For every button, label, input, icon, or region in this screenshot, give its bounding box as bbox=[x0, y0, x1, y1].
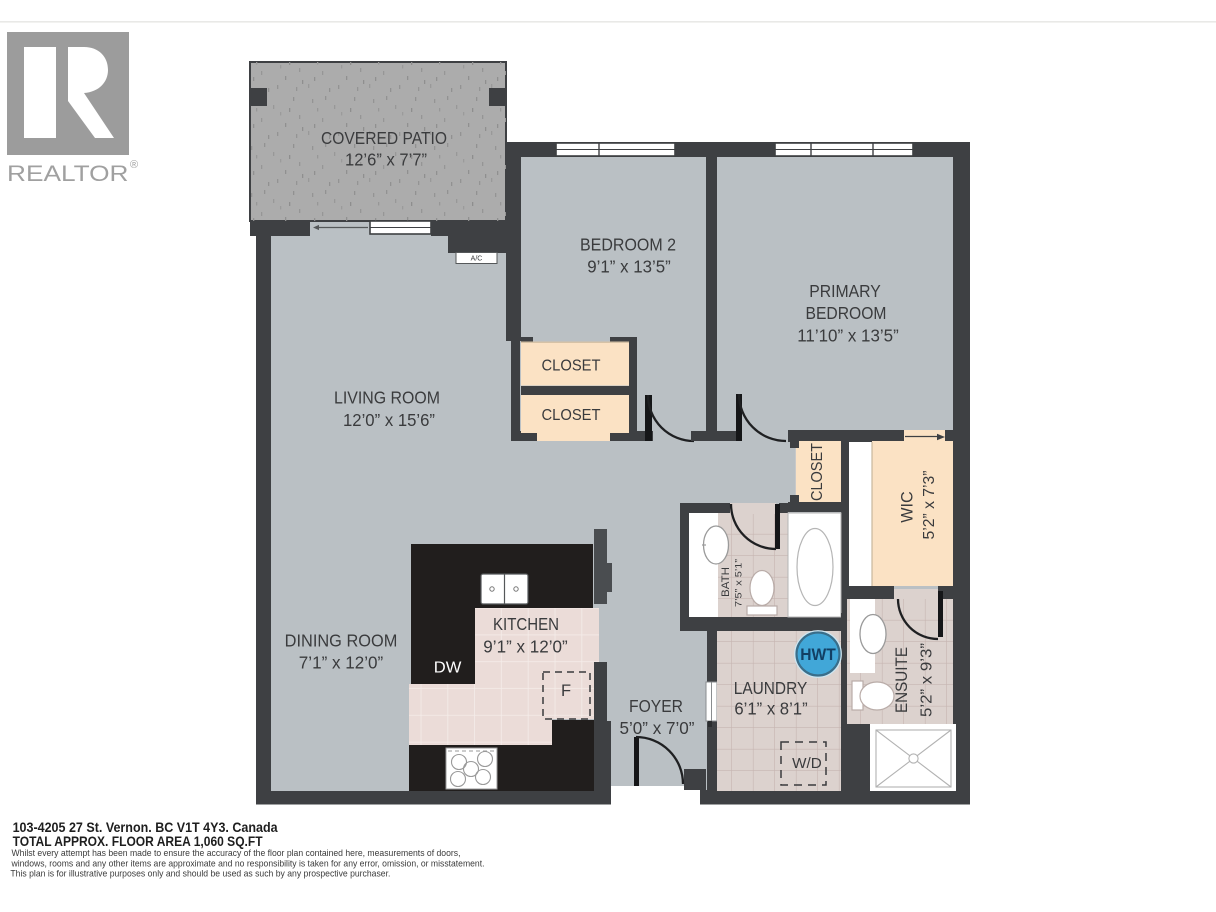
svg-text:WIC: WIC bbox=[899, 491, 917, 523]
svg-text:6’1” x 8’1”: 6’1” x 8’1” bbox=[734, 699, 807, 719]
svg-text:COVERED PATIO: COVERED PATIO bbox=[321, 128, 447, 148]
svg-text:11’10” x 13’5”: 11’10” x 13’5” bbox=[797, 325, 899, 345]
svg-text:CLOSET: CLOSET bbox=[809, 443, 826, 501]
svg-text:CLOSET: CLOSET bbox=[542, 358, 602, 375]
svg-text:DW: DW bbox=[434, 660, 462, 677]
svg-text:HWT: HWT bbox=[800, 646, 836, 664]
svg-text:12’6” x 7’7”: 12’6” x 7’7” bbox=[345, 150, 427, 170]
svg-text:®: ® bbox=[130, 159, 138, 171]
svg-text:9’1” x 12’0”: 9’1” x 12’0” bbox=[483, 636, 568, 656]
svg-text:PRIMARY: PRIMARY bbox=[809, 281, 881, 301]
svg-text:5’0” x 7’0”: 5’0” x 7’0” bbox=[620, 718, 695, 738]
svg-text:TOTAL APPROX. FLOOR AREA 1,060: TOTAL APPROX. FLOOR AREA 1,060 SQ.FT bbox=[13, 833, 263, 849]
svg-text:A/C: A/C bbox=[471, 256, 483, 263]
svg-text:DINING ROOM: DINING ROOM bbox=[285, 631, 398, 651]
svg-text:7’5” x 5’1”: 7’5” x 5’1” bbox=[734, 559, 745, 607]
svg-text:BATH: BATH bbox=[720, 567, 732, 597]
svg-text:9’1” x 13’5”: 9’1” x 13’5” bbox=[587, 256, 671, 276]
svg-text:FOYER: FOYER bbox=[629, 696, 683, 716]
svg-text:5’2” x 7’3”: 5’2” x 7’3” bbox=[921, 471, 938, 540]
svg-text:BEDROOM: BEDROOM bbox=[806, 303, 887, 323]
svg-text:Whilst every attempt has been: Whilst every attempt has been made to en… bbox=[12, 848, 461, 859]
svg-text:LAUNDRY: LAUNDRY bbox=[734, 678, 808, 698]
svg-text:F: F bbox=[561, 682, 571, 700]
svg-text:This plan is for illustrative: This plan is for illustrative purposes o… bbox=[10, 868, 390, 879]
svg-text:KITCHEN: KITCHEN bbox=[493, 614, 559, 634]
svg-text:12’0” x 15’6”: 12’0” x 15’6” bbox=[343, 410, 435, 430]
svg-text:7’1” x 12’0”: 7’1” x 12’0” bbox=[299, 652, 384, 672]
svg-text:REALTOR: REALTOR bbox=[7, 161, 129, 186]
svg-text:5’2” x 9’3”: 5’2” x 9’3” bbox=[919, 643, 936, 717]
svg-text:BEDROOM 2: BEDROOM 2 bbox=[580, 235, 676, 255]
svg-text:CLOSET: CLOSET bbox=[542, 407, 602, 424]
svg-text:LIVING ROOM: LIVING ROOM bbox=[334, 388, 440, 408]
svg-text:W/D: W/D bbox=[792, 755, 822, 772]
svg-text:ENSUITE: ENSUITE bbox=[893, 647, 911, 713]
